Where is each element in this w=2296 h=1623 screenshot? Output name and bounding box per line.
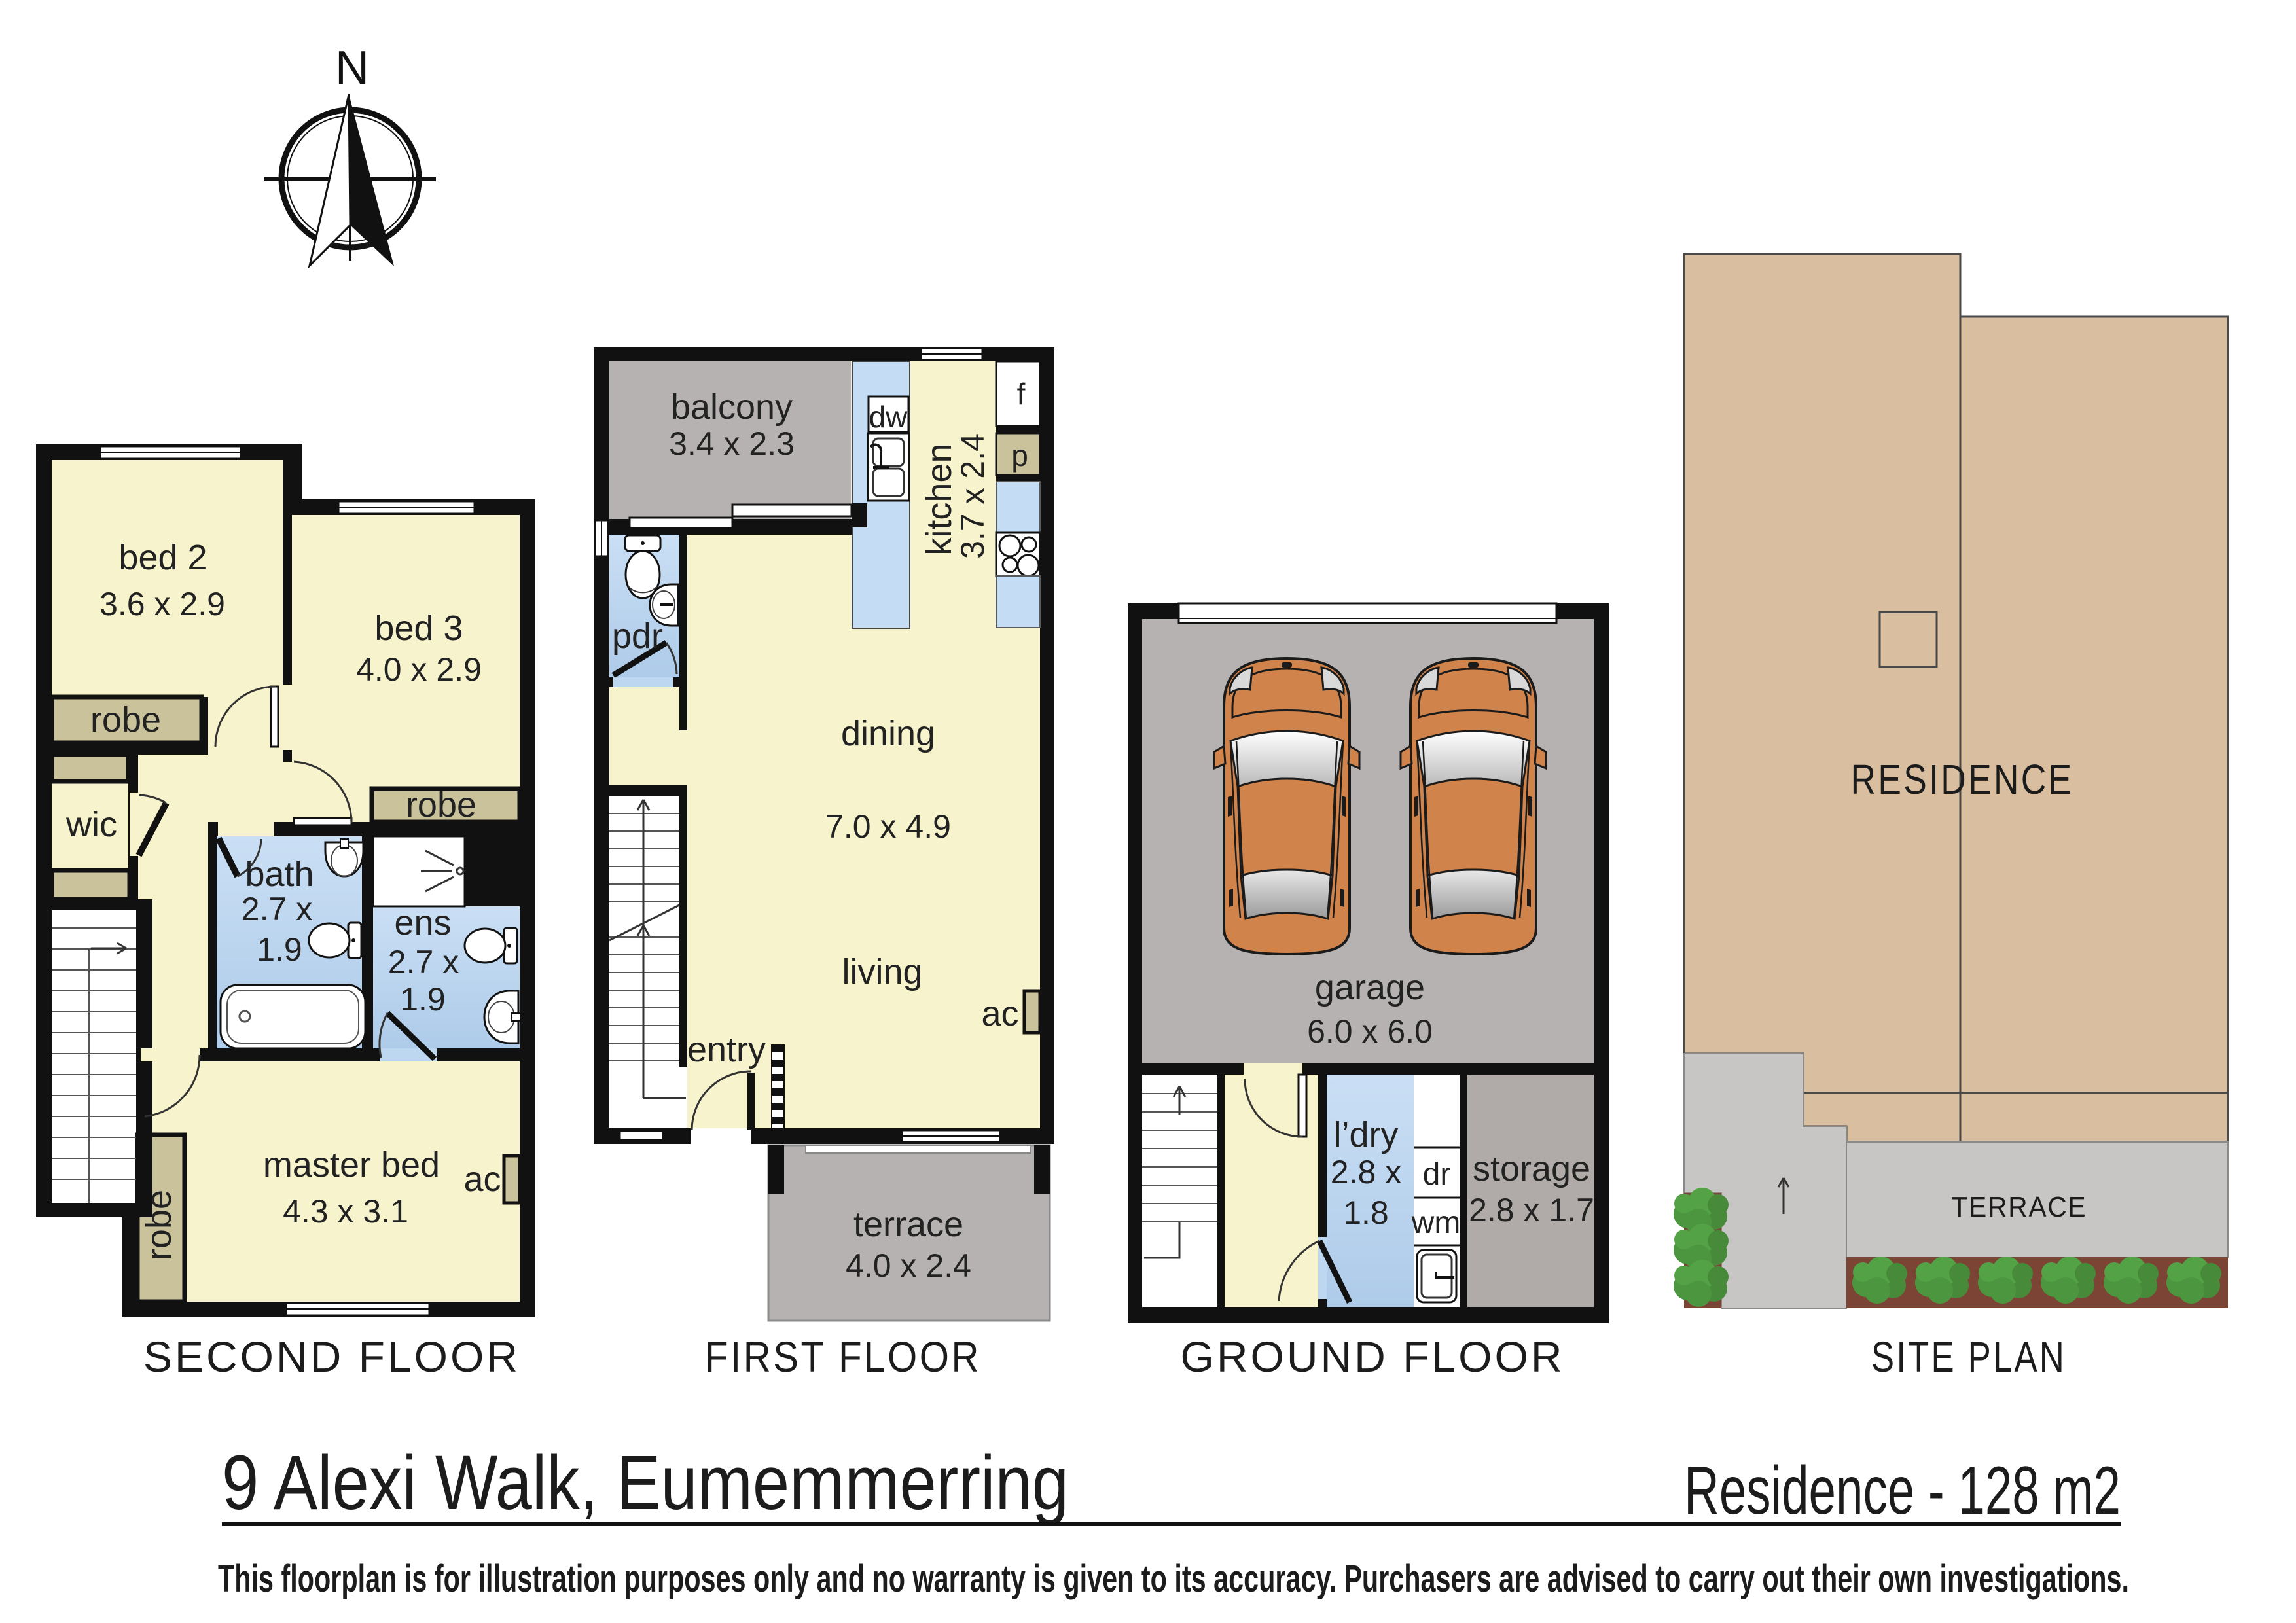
svg-text:living: living bbox=[842, 952, 922, 991]
svg-text:ac: ac bbox=[463, 1160, 501, 1199]
svg-text:dw: dw bbox=[869, 400, 908, 434]
svg-text:TERRACE: TERRACE bbox=[1952, 1191, 2087, 1223]
svg-text:kitchen: kitchen bbox=[920, 443, 959, 555]
svg-text:RESIDENCE: RESIDENCE bbox=[1851, 756, 2074, 803]
svg-text:4.3 x 3.1: 4.3 x 3.1 bbox=[283, 1193, 408, 1230]
svg-text:balcony: balcony bbox=[671, 387, 793, 427]
svg-text:Residence - 128 m2: Residence - 128 m2 bbox=[1684, 1453, 2121, 1529]
svg-text:p: p bbox=[1011, 438, 1028, 473]
svg-text:robe: robe bbox=[139, 1190, 179, 1260]
svg-text:3.7 x 2.4: 3.7 x 2.4 bbox=[954, 433, 991, 559]
svg-text:9 Alexi Walk, Eumemmerring: 9 Alexi Walk, Eumemmerring bbox=[222, 1440, 1069, 1526]
svg-text:1.8: 1.8 bbox=[1343, 1194, 1389, 1231]
svg-text:pdr: pdr bbox=[612, 616, 663, 656]
svg-text:robe: robe bbox=[406, 785, 476, 825]
svg-text:N: N bbox=[335, 42, 369, 94]
svg-text:SITE PLAN: SITE PLAN bbox=[1871, 1332, 2066, 1381]
svg-text:2.7 x: 2.7 x bbox=[242, 891, 312, 927]
svg-text:2.7 x: 2.7 x bbox=[388, 944, 459, 980]
svg-text:2.8 x 1.7: 2.8 x 1.7 bbox=[1469, 1192, 1594, 1228]
svg-text:ac: ac bbox=[981, 994, 1018, 1033]
svg-text:1.9: 1.9 bbox=[257, 931, 302, 968]
svg-text:1.9: 1.9 bbox=[400, 981, 446, 1018]
svg-text:dining: dining bbox=[841, 714, 935, 753]
svg-text:SECOND FLOOR: SECOND FLOOR bbox=[143, 1332, 520, 1381]
svg-text:wm: wm bbox=[1411, 1205, 1461, 1240]
svg-text:garage: garage bbox=[1315, 968, 1425, 1007]
svg-text:6.0 x 6.0: 6.0 x 6.0 bbox=[1307, 1013, 1433, 1050]
svg-text:ens: ens bbox=[394, 903, 451, 942]
svg-text:f: f bbox=[1017, 377, 1026, 411]
svg-text:FIRST FLOOR: FIRST FLOOR bbox=[705, 1332, 981, 1381]
svg-text:This floorplan is for illustra: This floorplan is for illustration purpo… bbox=[218, 1558, 2129, 1600]
svg-text:master bed: master bed bbox=[263, 1145, 440, 1185]
svg-text:wic: wic bbox=[65, 805, 117, 844]
svg-text:terrace: terrace bbox=[853, 1205, 963, 1244]
svg-text:storage: storage bbox=[1473, 1149, 1590, 1188]
svg-text:l’dry: l’dry bbox=[1333, 1115, 1398, 1154]
svg-text:7.0 x 4.9: 7.0 x 4.9 bbox=[825, 808, 951, 845]
svg-text:2.8 x: 2.8 x bbox=[1331, 1154, 1401, 1190]
svg-text:robe: robe bbox=[90, 700, 161, 740]
svg-text:3.4 x 2.3: 3.4 x 2.3 bbox=[669, 425, 795, 462]
svg-text:bed 2: bed 2 bbox=[118, 538, 207, 577]
svg-text:bed 3: bed 3 bbox=[374, 609, 463, 648]
svg-text:4.0 x 2.9: 4.0 x 2.9 bbox=[356, 651, 482, 688]
svg-text:dr: dr bbox=[1423, 1157, 1451, 1192]
svg-text:3.6 x 2.9: 3.6 x 2.9 bbox=[99, 586, 225, 622]
svg-text:entry: entry bbox=[687, 1030, 766, 1069]
svg-text:bath: bath bbox=[245, 855, 314, 894]
svg-text:4.0 x 2.4: 4.0 x 2.4 bbox=[846, 1247, 971, 1284]
svg-text:GROUND FLOOR: GROUND FLOOR bbox=[1180, 1332, 1564, 1381]
